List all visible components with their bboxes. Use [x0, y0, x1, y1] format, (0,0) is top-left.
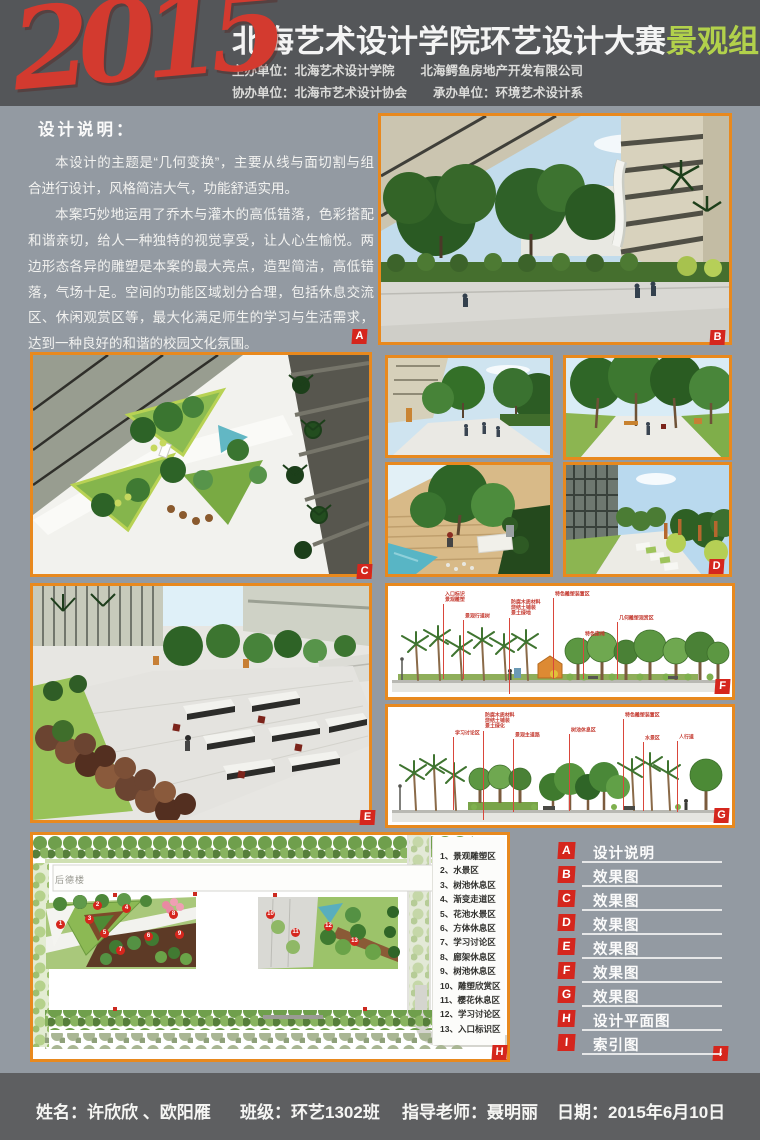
annotation-text: 入口标识 景观雕塑	[445, 591, 501, 602]
legend-item: 3、树池休息区	[440, 878, 505, 892]
annotation-line	[553, 598, 554, 679]
section-elevation-g: 学习讨论区防腐木质材料 烧结土铺装 景土绿化景观主道路树池休息区特色雕塑装置区水…	[385, 704, 735, 828]
index-label: 效果图	[593, 962, 640, 983]
badge-g: G	[713, 808, 729, 823]
index-underline	[582, 957, 722, 959]
index-label: 设计说明	[593, 842, 655, 863]
legend-item: 11、樱花休息区	[440, 993, 505, 1007]
render-m3-scene	[388, 465, 550, 574]
legend-item: 4、渐变走道区	[440, 892, 505, 906]
plan-marker: 11	[291, 928, 300, 937]
footer-date: 日期：2015年6月10日	[557, 1098, 725, 1123]
annotation-line	[583, 638, 584, 679]
index-underline	[582, 885, 722, 887]
title-block: 北海艺术设计学院环艺设计大赛景观组	[232, 16, 752, 61]
legend-item: 7、学习讨论区	[440, 935, 505, 949]
render-image-e	[30, 583, 372, 823]
annotation: 防腐木质材料 烧结土铺装 景土绿地	[509, 599, 601, 627]
annotation-text: 树池休息区	[571, 727, 627, 733]
plan-marker: 6	[144, 932, 153, 941]
render-image-d	[563, 462, 732, 577]
index-row: C效果图	[556, 890, 740, 912]
render-b-scene	[381, 116, 729, 342]
index-panel: I A设计说明B效果图C效果图D效果图E效果图F效果图G效果图H设计平面图I索引…	[556, 838, 740, 1064]
annotation-text: 几何雕塑观赏区	[619, 615, 675, 621]
render-c-scene	[33, 355, 369, 574]
index-badge: D	[557, 914, 575, 931]
index-label: 设计平面图	[593, 1010, 671, 1031]
index-badge: F	[557, 962, 575, 979]
index-underline	[582, 1029, 722, 1031]
render-image-b	[378, 113, 732, 345]
index-underline	[582, 861, 722, 863]
org-line-2: 协办单位：北海市艺术设计协会承办单位：环境艺术设计系	[232, 82, 609, 101]
index-row: A设计说明	[556, 842, 740, 864]
render-image-m3	[385, 462, 553, 577]
plan-panel: 后德楼 12345678910111213 1、景观雕塑区2、水景区3、树池休息…	[30, 832, 510, 1062]
legend-item: 6、方体休息区	[440, 921, 505, 935]
annotation-line	[569, 734, 570, 811]
footer-bar: 姓名：许欣欣 、欧阳雁 班级：环艺1302班 指导老师：聂明丽 日期：2015年…	[0, 1073, 760, 1140]
plan-legend: 1、景观雕塑区2、水景区3、树池休息区4、渐变走道区5、花池水景区6、方体休息区…	[432, 837, 505, 1045]
annotation-text: 景观主道路	[515, 732, 571, 738]
title-highlight: 景观组	[666, 24, 759, 59]
annotation-line	[513, 739, 514, 812]
plan-marker: 2	[93, 901, 102, 910]
footer-name: 姓名：许欣欣 、欧阳雁	[36, 1098, 211, 1123]
index-badge: I	[557, 1034, 575, 1051]
index-badge: C	[557, 890, 575, 907]
index-row: B效果图	[556, 866, 740, 888]
index-label: 效果图	[593, 938, 640, 959]
index-badge: E	[557, 938, 575, 955]
index-label: 效果图	[593, 890, 640, 911]
index-label: 效果图	[593, 914, 640, 935]
render-image-m2	[563, 355, 732, 460]
index-row: G效果图	[556, 986, 740, 1008]
plan-marker: 3	[85, 915, 94, 924]
sculpture	[616, 161, 621, 246]
plan-marker: 5	[100, 929, 109, 938]
badge-d: D	[708, 559, 724, 574]
plan-marker: 1	[56, 920, 65, 929]
annotation-line	[463, 620, 464, 679]
legend-item: 2、水景区	[440, 863, 505, 877]
legend-item: 8、廊架休息区	[440, 950, 505, 964]
annotation-text: 人行道	[679, 734, 735, 740]
annotation-text: 防腐木质材料 烧结土铺装 景土绿地	[511, 599, 567, 616]
render-d-scene	[566, 465, 729, 574]
annotation-line	[643, 742, 644, 811]
index-row: D效果图	[556, 914, 740, 936]
legend-item: 9、树池休息区	[440, 964, 505, 978]
org-host-2: 北海鳄鱼房地产开发有限公司	[421, 64, 584, 78]
description-paragraph-2: 本案巧妙地运用了乔木与灌木的高低错落，色彩搭配和谐亲切，给人一种独特的视觉享受，…	[28, 202, 374, 357]
render-m2-scene	[566, 358, 729, 457]
plan-marker: 4	[122, 904, 131, 913]
render-image-c	[30, 352, 372, 577]
index-badge: A	[557, 842, 575, 859]
design-description-title: 设计说明：	[38, 116, 374, 140]
annotation: 几何雕塑观赏区	[617, 615, 709, 624]
index-badge: G	[557, 986, 575, 1003]
legend-item: 12、学习讨论区	[440, 1007, 505, 1021]
annotation-line	[443, 604, 444, 679]
org-undertaker: 承办单位：环境艺术设计系	[433, 86, 583, 100]
annotation: 人行道	[677, 734, 735, 743]
annotation-line	[623, 719, 624, 810]
annotation: 特色座椅	[583, 631, 675, 640]
annotation-line	[677, 741, 678, 812]
footer-class: 班级：环艺1302班	[240, 1098, 380, 1123]
section-f-annotations: 入口标识 景观雕塑景观行道树防腐木质材料 烧结土铺装 景土绿地特色雕塑装置区特色…	[391, 589, 729, 694]
index-label: 效果图	[593, 986, 640, 1007]
design-description: 设计说明： 本设计的主题是“几何变换”，主要从线与面切割与组合进行设计，风格简洁…	[28, 116, 374, 344]
annotation-line	[617, 622, 618, 679]
legend-item: 5、花池水景区	[440, 907, 505, 921]
plan-marker: 12	[324, 922, 333, 931]
annotation-text: 特色雕塑装置区	[555, 591, 611, 597]
index-underline	[582, 1005, 722, 1007]
index-underline	[582, 933, 722, 935]
index-label: 索引图	[593, 1034, 640, 1055]
footer-teacher: 指导老师：聂明丽	[402, 1098, 538, 1123]
index-row: H设计平面图	[556, 1010, 740, 1032]
annotation-line	[509, 618, 510, 694]
description-paragraph-1: 本设计的主题是“几何变换”，主要从线与面切割与组合进行设计，风格简洁大气，功能舒…	[28, 150, 374, 202]
badge-f: F	[714, 679, 730, 694]
badge-e: E	[359, 810, 375, 825]
legend-item: 10、雕塑欣赏区	[440, 979, 505, 993]
section-elevation-f: 入口标识 景观雕塑景观行道树防腐木质材料 烧结土铺装 景土绿地特色雕塑装置区特色…	[385, 583, 735, 700]
badge-a: A	[351, 329, 367, 344]
pavement	[381, 282, 729, 342]
index-badge: B	[557, 866, 575, 883]
legend-item: 13、入口标识区	[440, 1022, 505, 1036]
annotation: 特色雕塑装置区	[553, 591, 645, 600]
badge-c: C	[356, 564, 372, 579]
plan-marker: 9	[175, 930, 184, 939]
annotation-text: 特色座椅	[585, 631, 641, 637]
index-row: I索引图	[556, 1034, 740, 1056]
annotation-text: 特色雕塑装置区	[625, 712, 681, 718]
index-underline	[582, 981, 722, 983]
annotation-line	[483, 731, 484, 820]
section-g-annotations: 学习讨论区防腐木质材料 烧结土铺装 景土绿化景观主道路树池休息区特色雕塑装置区水…	[391, 710, 729, 822]
render-image-m1	[385, 355, 553, 458]
annotation: 特色雕塑装置区	[623, 712, 715, 721]
index-row: F效果图	[556, 962, 740, 984]
plan-marker: 7	[116, 946, 125, 955]
index-row: E效果图	[556, 938, 740, 960]
annotation-text: 防腐木质材料 烧结土铺装 景土绿化	[485, 712, 541, 729]
render-e-scene	[33, 586, 369, 820]
index-badge: H	[557, 1010, 575, 1027]
render-m1-scene	[388, 358, 550, 455]
plan-marker: 13	[350, 937, 359, 946]
index-underline	[582, 1053, 722, 1055]
badge-b: B	[709, 330, 725, 345]
badge-h: H	[491, 1045, 507, 1060]
title-main: 北海艺术设计学院环艺设计大赛	[232, 24, 666, 59]
index-label: 效果图	[593, 866, 640, 887]
legend-item: 1、景观雕塑区	[440, 849, 505, 863]
year-logo: 2015	[8, 0, 242, 108]
poster-title: 北海艺术设计学院环艺设计大赛景观组	[232, 16, 752, 61]
plan-marker: 8	[169, 910, 178, 919]
annotation-line	[453, 737, 454, 810]
poster: 北海艺术设计学院环艺设计大赛景观组 主办单位：北海艺术设计学院北海鳄鱼房地产开发…	[0, 0, 760, 1140]
plan-marker: 10	[266, 910, 275, 919]
org-line-1: 主办单位：北海艺术设计学院北海鳄鱼房地产开发有限公司	[232, 60, 609, 79]
index-underline	[582, 909, 722, 911]
building-label: 后德楼	[55, 873, 85, 886]
